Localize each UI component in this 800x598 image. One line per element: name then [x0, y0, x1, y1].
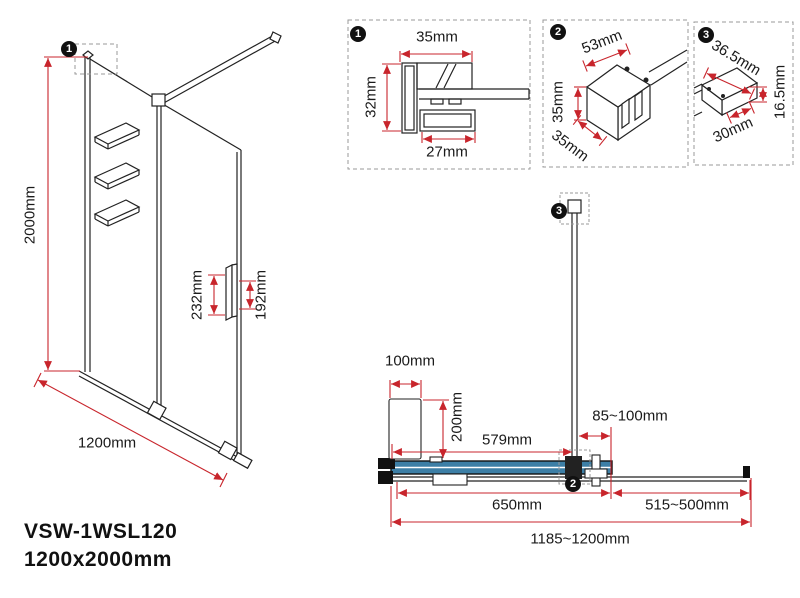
dim-height-2000: 2000mm [22, 186, 39, 244]
wall-profile [83, 51, 93, 372]
plan-dim-overall: 1185~1200mm [530, 531, 629, 548]
detail1-dim-top: 35mm [416, 29, 458, 46]
plan-dim-515-500: 515~500mm [645, 497, 729, 514]
dim-width-1200: 1200mm [78, 435, 136, 452]
callout-box-1 [75, 44, 117, 74]
marker-1-elevation: 1 [61, 41, 77, 57]
marker-1-detail: 1 [350, 26, 366, 42]
plan-dim-85-100: 85~100mm [592, 408, 667, 425]
detail3-dim-side: 16.5mm [772, 65, 789, 119]
marker-3-plan: 3 [551, 203, 567, 219]
bottom-rail [79, 371, 252, 468]
marker-2-detail: 2 [550, 24, 566, 40]
plan-dim-579: 579mm [482, 432, 532, 449]
dim-handle-232: 232mm [189, 270, 206, 320]
plan-dim-200: 200mm [449, 392, 466, 442]
marker-2-plan: 2 [565, 476, 581, 492]
product-size: 1200x2000mm [24, 548, 172, 572]
dim-handle-192: 192mm [253, 270, 270, 320]
detail1-dim-bottom: 27mm [426, 144, 468, 161]
technical-drawing-sheet: 2000mm 1200mm 232mm 192mm 35mm 32mm 27mm… [0, 0, 800, 598]
support-bar [152, 32, 281, 106]
shelves [95, 123, 139, 226]
marker-3-detail: 3 [698, 27, 714, 43]
plan-dim-100: 100mm [385, 353, 435, 370]
plan-dim-650: 650mm [492, 497, 542, 514]
detail2-dim-side: 35mm [550, 81, 567, 123]
product-model: VSW-1WSL120 [24, 520, 177, 544]
elevation-view [75, 32, 281, 468]
elevation-dimensions [34, 57, 256, 487]
handle [226, 264, 237, 320]
detail1-dim-side: 32mm [363, 76, 380, 118]
glass-panels [90, 59, 241, 459]
